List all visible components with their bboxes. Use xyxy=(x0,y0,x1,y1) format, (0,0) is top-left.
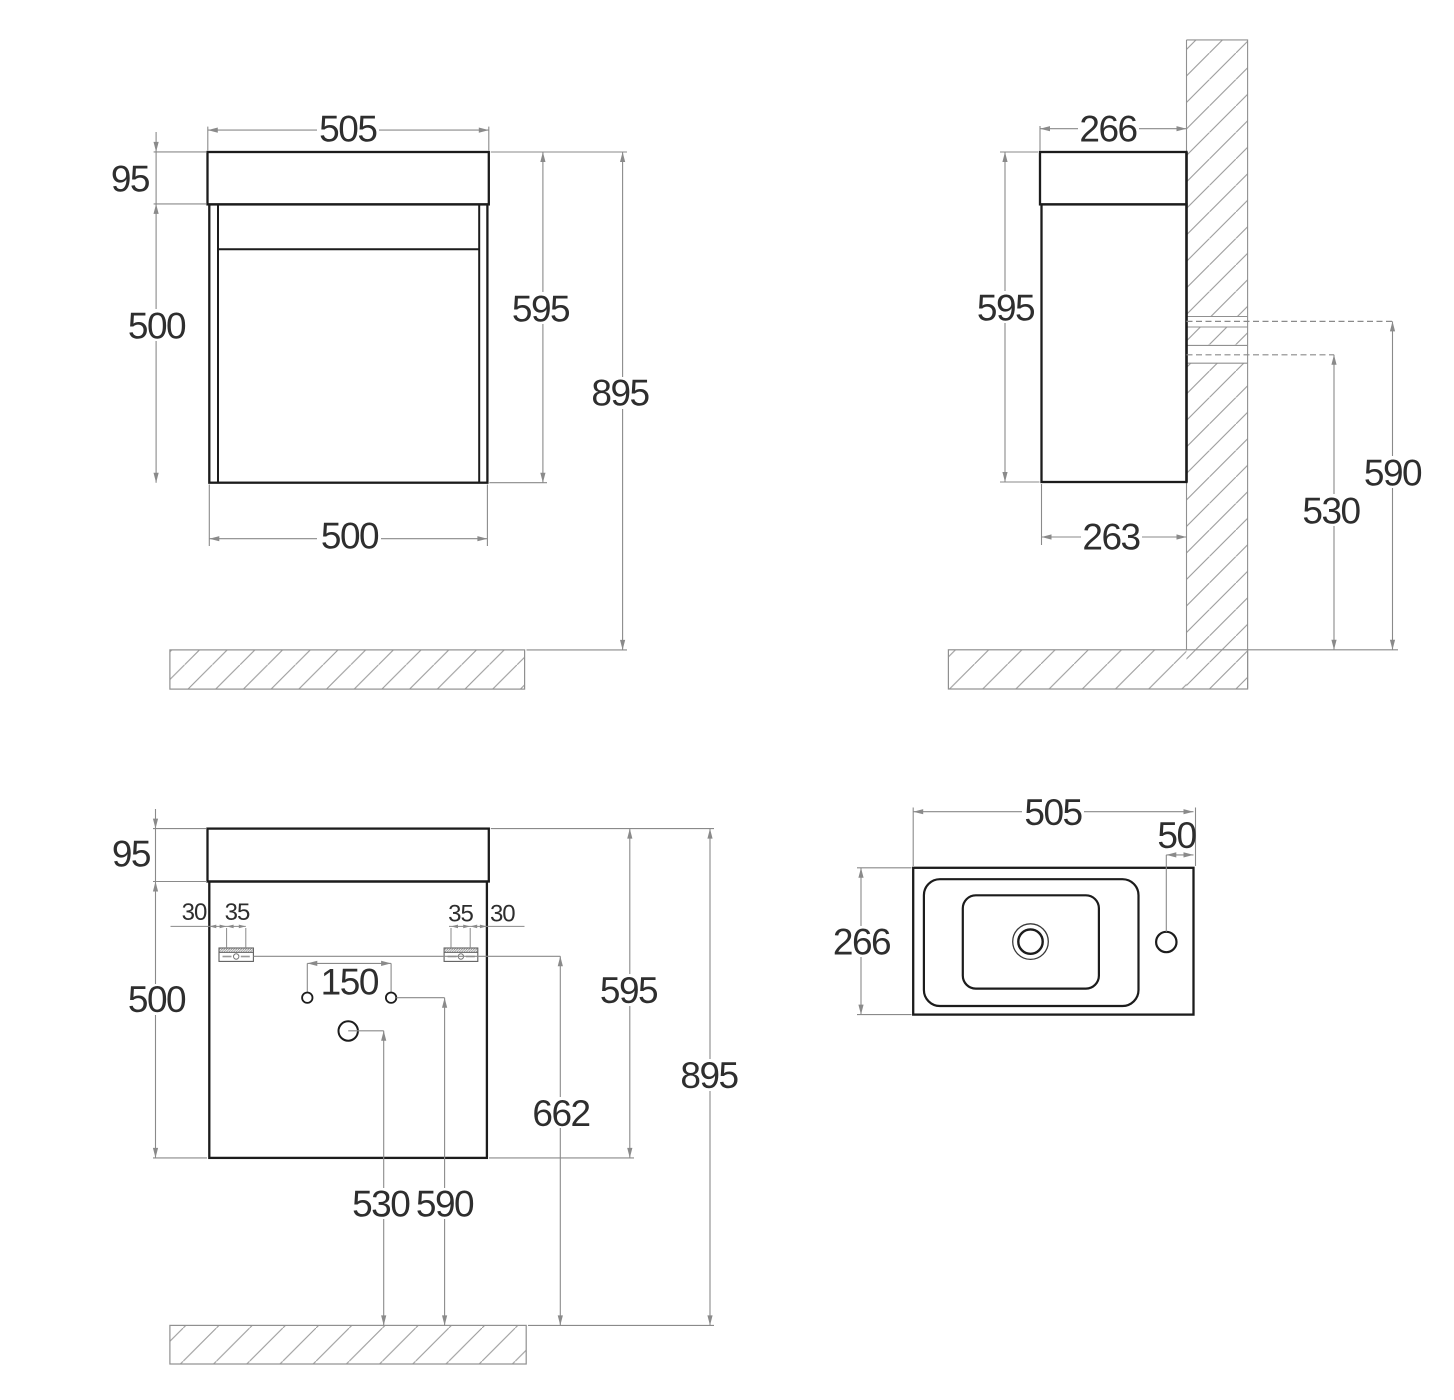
svg-text:595: 595 xyxy=(600,970,658,1011)
svg-text:95: 95 xyxy=(111,159,150,200)
svg-text:595: 595 xyxy=(512,289,570,330)
svg-text:590: 590 xyxy=(1364,453,1422,494)
svg-text:50: 50 xyxy=(1157,815,1196,856)
svg-text:30: 30 xyxy=(182,899,207,926)
svg-text:895: 895 xyxy=(591,373,649,414)
svg-text:30: 30 xyxy=(490,901,515,928)
svg-text:505: 505 xyxy=(1024,792,1082,833)
svg-text:500: 500 xyxy=(128,306,186,347)
svg-text:595: 595 xyxy=(977,288,1035,329)
svg-text:266: 266 xyxy=(1079,109,1136,150)
svg-text:590: 590 xyxy=(416,1184,474,1225)
svg-text:266: 266 xyxy=(833,922,890,963)
svg-text:500: 500 xyxy=(321,516,379,557)
svg-text:530: 530 xyxy=(352,1184,410,1225)
svg-text:505: 505 xyxy=(319,109,377,150)
svg-text:530: 530 xyxy=(1302,491,1360,532)
svg-text:500: 500 xyxy=(128,979,186,1020)
svg-text:35: 35 xyxy=(225,899,250,926)
svg-text:35: 35 xyxy=(448,901,473,928)
svg-text:150: 150 xyxy=(321,962,379,1003)
svg-text:662: 662 xyxy=(532,1093,589,1134)
svg-text:95: 95 xyxy=(112,833,151,874)
svg-text:895: 895 xyxy=(680,1055,738,1096)
svg-text:263: 263 xyxy=(1082,517,1139,558)
